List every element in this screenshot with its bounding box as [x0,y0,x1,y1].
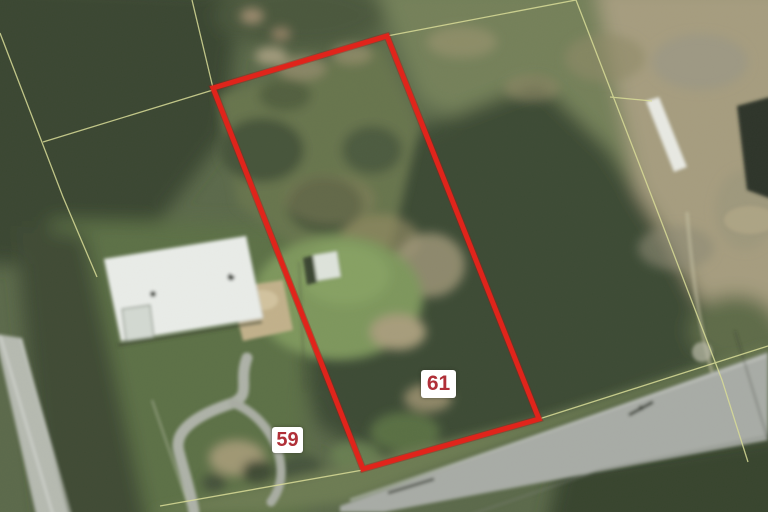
photo-grain [0,0,768,512]
parcel-marker-59[interactable]: 59 [272,427,303,453]
aerial-imagery [0,0,768,512]
parcel-marker-61[interactable]: 61 [421,370,456,398]
aerial-map-view: 61 59 [0,0,768,512]
